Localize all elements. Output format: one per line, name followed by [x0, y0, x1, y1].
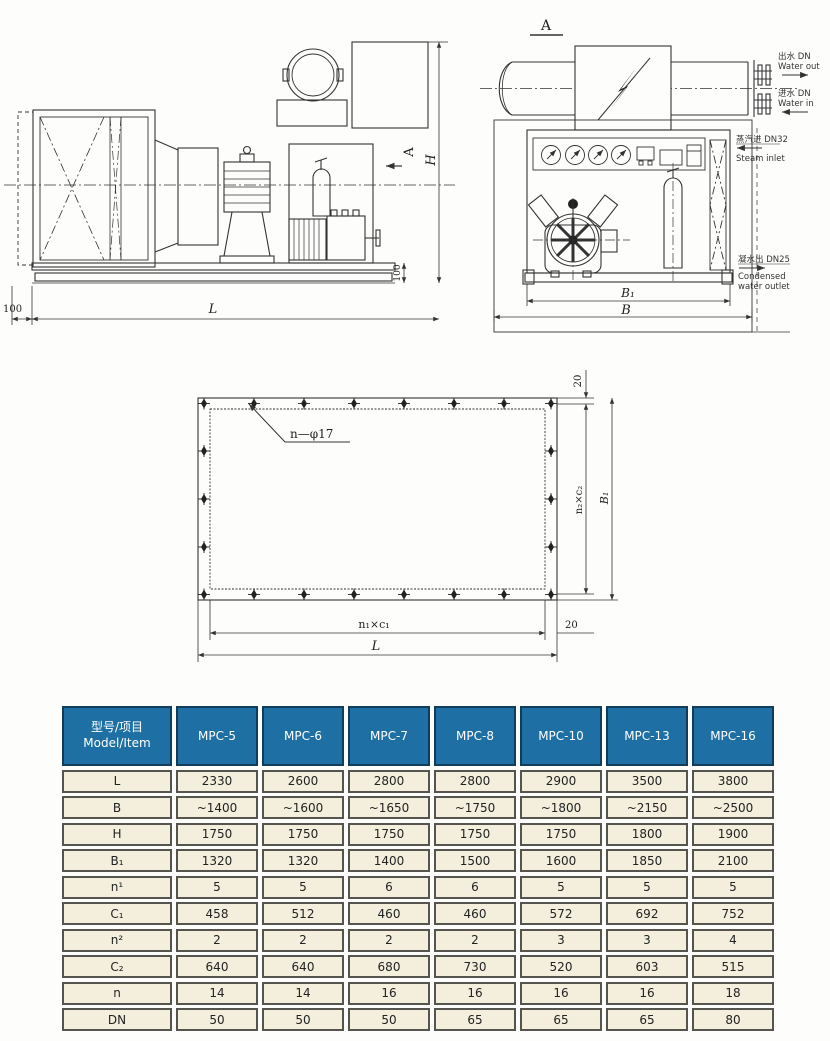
- table-cell: 16: [434, 982, 516, 1005]
- table-cell: 3: [520, 929, 602, 952]
- table-cell: ~1750: [434, 796, 516, 819]
- catalog-page: A H 100 100 L A: [0, 0, 830, 1041]
- table-cell: 3800: [692, 770, 774, 793]
- column-header: MPC-6: [262, 706, 344, 766]
- table-cell: 1600: [520, 849, 602, 872]
- column-header: MPC-8: [434, 706, 516, 766]
- column-header: MPC-13: [606, 706, 688, 766]
- flange-dimensions: [198, 370, 618, 662]
- water-out-cn: 出水 DN: [778, 51, 811, 62]
- table-cell: 16: [520, 982, 602, 1005]
- dim-L-flange-label: L: [371, 639, 381, 654]
- table-cell: 1750: [348, 823, 430, 846]
- row-label: n: [62, 982, 172, 1005]
- water-nozzles: [754, 65, 772, 114]
- compressor-side: [289, 210, 380, 260]
- table-cell: ~2500: [692, 796, 774, 819]
- table-cell: 1800: [606, 823, 688, 846]
- base-frame: [32, 263, 395, 283]
- cond-cn: 凝水出 DN25: [738, 254, 790, 265]
- table-cell: 2100: [692, 849, 774, 872]
- table-cell: 50: [262, 1008, 344, 1031]
- table-cell: 2800: [348, 770, 430, 793]
- table-cell: 603: [606, 955, 688, 978]
- table-cell: 6: [434, 876, 516, 899]
- table-cell: 640: [176, 955, 258, 978]
- table-cell: 1750: [434, 823, 516, 846]
- table-cell: 3500: [606, 770, 688, 793]
- column-header: MPC-10: [520, 706, 602, 766]
- gauge-icon: [542, 146, 561, 165]
- water-out-en: Water out: [778, 62, 820, 72]
- table-cell: 5: [176, 876, 258, 899]
- table-cell: 460: [348, 902, 430, 925]
- table-cell: 5: [606, 876, 688, 899]
- table-cell: 752: [692, 902, 774, 925]
- gauge-icon: [612, 146, 631, 165]
- table-cell: 1750: [262, 823, 344, 846]
- row-label: C₁: [62, 902, 172, 925]
- motor: [220, 147, 274, 264]
- table-cell: ~1400: [176, 796, 258, 819]
- table-cell: 4: [692, 929, 774, 952]
- heat-exchanger-box: [33, 110, 155, 267]
- table-cell: 18: [692, 982, 774, 1005]
- table-cell: 50: [176, 1008, 258, 1031]
- table-cell: ~1600: [262, 796, 344, 819]
- row-label: L: [62, 770, 172, 793]
- dim-B1-label: B₁: [620, 286, 635, 300]
- gauge-icon: [589, 146, 608, 165]
- table-cell: 2: [262, 929, 344, 952]
- table-cell: 5: [262, 876, 344, 899]
- dim-20-bottom-label: 20: [565, 620, 578, 631]
- table-cell: 65: [434, 1008, 516, 1031]
- table-cell: 460: [434, 902, 516, 925]
- side-view-dimensions: [12, 42, 439, 325]
- column-header: MPC-16: [692, 706, 774, 766]
- row-label: B₁: [62, 849, 172, 872]
- hole-label: n—φ17: [290, 427, 333, 441]
- view-arrow-label: A: [402, 147, 417, 158]
- row-label: n²: [62, 929, 172, 952]
- cond-en1: Condensed: [738, 272, 786, 282]
- table-cell: 515: [692, 955, 774, 978]
- row-label: C₂: [62, 955, 172, 978]
- table-cell: 1500: [434, 849, 516, 872]
- table-cell: 572: [520, 902, 602, 925]
- filter-cylinder: [664, 163, 682, 282]
- dim-B-label: B: [620, 303, 631, 318]
- steam-cn: 蒸汽进 DN32: [736, 134, 788, 145]
- dimension-table: 型号/项目 Model/Item MPC-5 MPC-6 MPC-7 MPC-8…: [62, 706, 774, 1031]
- table-cell: 2900: [520, 770, 602, 793]
- table-cell: 1750: [176, 823, 258, 846]
- water-in-cn: 进水 DN: [778, 88, 811, 99]
- row-label: B: [62, 796, 172, 819]
- table-cell: 14: [262, 982, 344, 1005]
- dim-B1-flange-label: B₁: [598, 492, 611, 506]
- dim-100-right-label: 100: [393, 264, 403, 281]
- table-cell: 2: [434, 929, 516, 952]
- front-view-drawing: A: [480, 18, 820, 332]
- dim-100-left-label: 100: [3, 304, 22, 315]
- table-cell: 458: [176, 902, 258, 925]
- table-cell: 65: [606, 1008, 688, 1031]
- bolt-holes: [198, 398, 557, 601]
- condenser-cylinder: [480, 46, 800, 130]
- table-cell: 80: [692, 1008, 774, 1031]
- table-cell: 14: [176, 982, 258, 1005]
- table-cell: 2: [348, 929, 430, 952]
- table-cell: 1400: [348, 849, 430, 872]
- compressor-front: [528, 195, 630, 280]
- column-header-model-item: 型号/项目 Model/Item: [62, 706, 172, 766]
- row-label: n¹: [62, 876, 172, 899]
- table-cell: 2600: [262, 770, 344, 793]
- steam-en: Steam inlet: [736, 154, 785, 164]
- table-cell: 512: [262, 902, 344, 925]
- table-cell: 2330: [176, 770, 258, 793]
- technical-drawings: A H 100 100 L A: [0, 0, 830, 700]
- model-item-en: Model/Item: [83, 736, 150, 752]
- table-cell: 1850: [606, 849, 688, 872]
- table-cell: 2: [176, 929, 258, 952]
- dim-20-top-label: 20: [573, 375, 584, 388]
- table-cell: 692: [606, 902, 688, 925]
- table-cell: 16: [606, 982, 688, 1005]
- column-header: MPC-5: [176, 706, 258, 766]
- dim-L-label: L: [208, 302, 218, 317]
- front-view-label: A: [540, 18, 552, 34]
- row-label: DN: [62, 1008, 172, 1031]
- table-cell: 3: [606, 929, 688, 952]
- table-cell: 6: [348, 876, 430, 899]
- table-cell: ~1800: [520, 796, 602, 819]
- frame-and-cylinder: [289, 144, 373, 263]
- table-cell: 680: [348, 955, 430, 978]
- table-cell: 65: [520, 1008, 602, 1031]
- pipe-annotations: 出水 DN Water out 进水 DN Water in 蒸汽进 DN32 …: [736, 51, 820, 292]
- water-in-en: Water in: [778, 99, 814, 109]
- table-cell: 50: [348, 1008, 430, 1031]
- table-cell: 16: [348, 982, 430, 1005]
- model-item-cn: 型号/项目: [91, 720, 143, 736]
- dim-n2c2-label: n₂×c₂: [574, 486, 585, 514]
- row-label: H: [62, 823, 172, 846]
- table-cell: ~2150: [606, 796, 688, 819]
- dim-n1c1-label: n₁×c₁: [358, 618, 389, 631]
- table-cell: ~1650: [348, 796, 430, 819]
- table-cell: 730: [434, 955, 516, 978]
- dim-H-label: H: [424, 154, 439, 167]
- table-cell: 520: [520, 955, 602, 978]
- table-cell: 1900: [692, 823, 774, 846]
- gauge-icon: [566, 146, 585, 165]
- table-cell: 1750: [520, 823, 602, 846]
- flange-drawing: n—φ17 20 n₂×c₂: [198, 370, 618, 662]
- side-view-drawing: A H 100 100 L: [3, 42, 455, 325]
- cond-en2: water outlet: [738, 282, 790, 292]
- table-cell: 5: [520, 876, 602, 899]
- column-header: MPC-7: [348, 706, 430, 766]
- table-cell: 5: [692, 876, 774, 899]
- fan-outlet: [277, 42, 448, 128]
- table-cell: 2800: [434, 770, 516, 793]
- braced-panel: [710, 140, 726, 270]
- table-cell: 1320: [176, 849, 258, 872]
- fan-housing: [155, 140, 218, 252]
- gauge-panel: [533, 138, 705, 170]
- table-cell: 1320: [262, 849, 344, 872]
- table-cell: 640: [262, 955, 344, 978]
